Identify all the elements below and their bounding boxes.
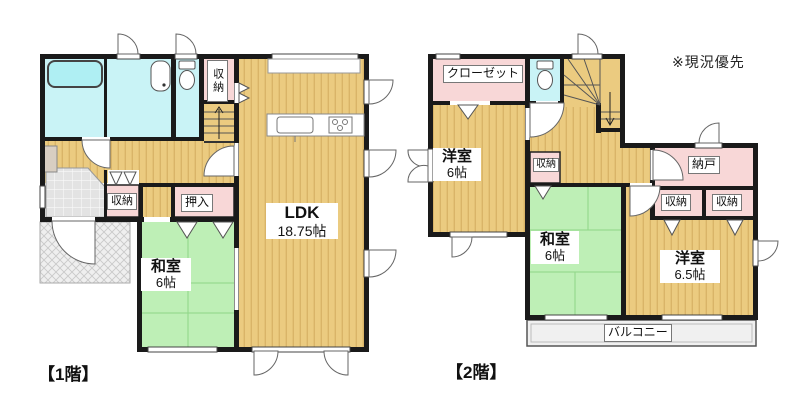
caption-floor1: 【1階】: [38, 360, 98, 385]
label-closet-2f: クローゼット: [443, 65, 523, 83]
label-storage-hall-1f: 収納: [107, 193, 137, 210]
floorplan-canvas: 収納 収納 押入 LDK 18.75帖 和室 6帖 【1階】 クローゼット 洋室…: [0, 0, 800, 416]
shoe-cabinet: [44, 146, 57, 172]
note-text: ※現況優先: [672, 52, 745, 72]
hallway-strip-1f: [143, 183, 171, 217]
toilet-tank-2f: [537, 61, 553, 69]
label-storage-left-2f: 収納: [661, 194, 691, 211]
kitchen-sink: [277, 117, 313, 133]
label-nando: 納戸: [688, 156, 720, 174]
toilet-bowl-1f: [180, 71, 195, 90]
label-yoshitsu6-size: 6帖: [435, 166, 479, 181]
washbasin: [151, 61, 170, 91]
hallway-2f-east: [620, 148, 655, 183]
label-washitsu-1f-size: 6帖: [143, 276, 189, 291]
label-balcony: バルコニー: [604, 324, 672, 342]
kitchen-back-counter: [268, 59, 360, 73]
label-ldk-size: 18.75帖: [268, 223, 336, 239]
label-oshiire: 押入: [181, 194, 213, 212]
label-yoshitsu65-name: 洋室: [675, 250, 705, 267]
caption-floor2: 【2階】: [446, 358, 506, 383]
label-yoshitsu65-size: 6.5帖: [662, 268, 718, 283]
label-yoshitsu6-name: 洋室: [442, 148, 472, 165]
toilet-bowl-2f: [538, 71, 553, 90]
label-washitsu-2f-size: 6帖: [533, 249, 577, 264]
label-ldk-name: LDK: [285, 203, 320, 222]
label-storage-top-1f: 収納: [207, 60, 228, 102]
toilet-tank-1f: [179, 61, 195, 69]
bathtub: [48, 61, 102, 87]
label-storage-hall-2f: 収納: [533, 158, 559, 172]
label-storage-right-2f: 収納: [712, 194, 742, 211]
label-washitsu-1f-name: 和室: [151, 258, 181, 275]
label-washitsu-2f-name: 和室: [540, 231, 570, 248]
washbasin-drain: [162, 83, 165, 86]
